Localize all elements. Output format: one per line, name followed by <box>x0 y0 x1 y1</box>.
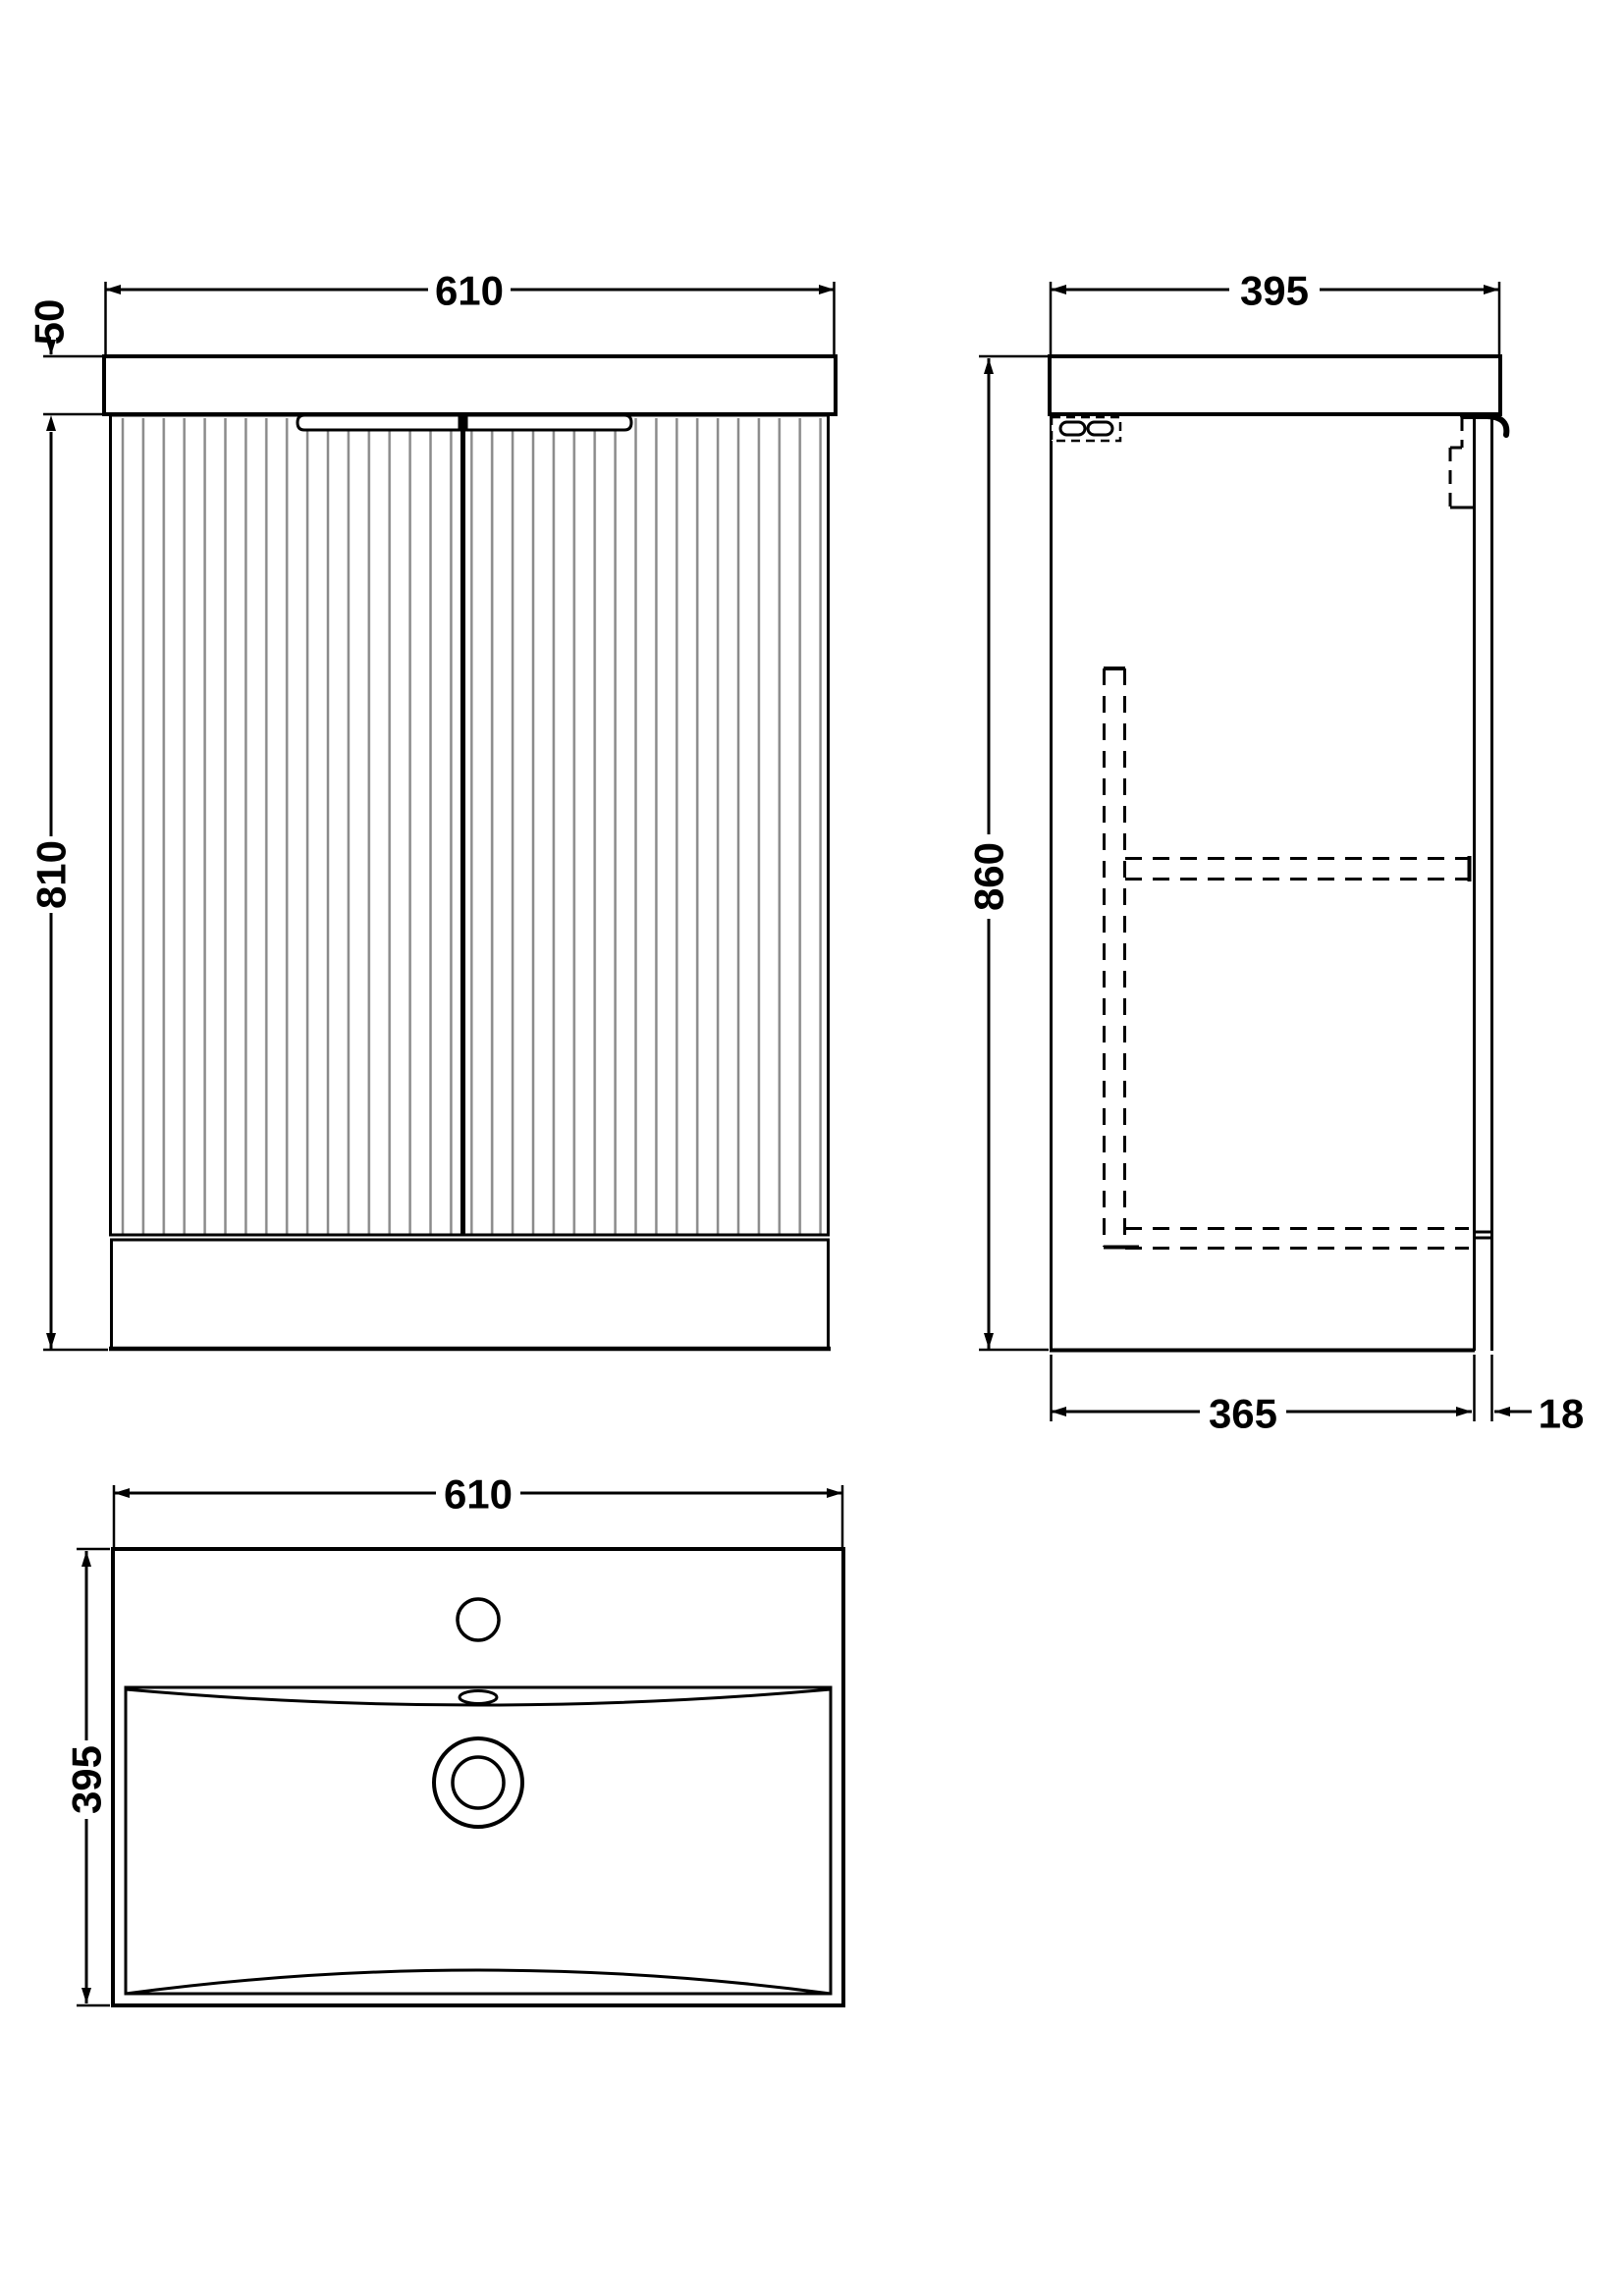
countertop-front <box>104 356 836 414</box>
dimension-label-cabinet-depth: 365 <box>1209 1391 1277 1437</box>
arrowhead <box>105 285 121 294</box>
waste-drain-inner <box>453 1757 504 1808</box>
dimension-label-overall-height: 860 <box>966 842 1012 911</box>
vanity-unit-technical-drawing: 610 50 810 <box>0 0 1623 2296</box>
arrowhead <box>1051 285 1066 294</box>
wall-bracket-slot <box>1060 422 1085 435</box>
handle-recess-right <box>466 415 631 430</box>
basin-lip <box>1463 416 1506 435</box>
arrowhead <box>81 1988 91 2003</box>
arrowhead <box>984 358 994 374</box>
arrowhead <box>1484 285 1499 294</box>
handle-recess-left <box>298 415 460 430</box>
arrowhead <box>46 415 56 431</box>
dimension-label-basin-width: 610 <box>444 1471 513 1518</box>
side-section-view <box>1050 356 1506 1351</box>
arrowhead <box>819 285 835 294</box>
arrowhead <box>1051 1407 1066 1416</box>
technical-drawing-page: 610 50 810 <box>0 0 1623 2296</box>
dimension-label-door-thickness: 18 <box>1539 1391 1585 1437</box>
arrowhead <box>1494 1407 1510 1416</box>
arrowhead <box>827 1488 842 1498</box>
arrowhead <box>1456 1407 1472 1416</box>
dimension-label-cabinet-height: 810 <box>28 840 75 909</box>
dimension-label-side-depth: 395 <box>1240 268 1309 314</box>
dimension-label-basin-depth: 395 <box>64 1745 110 1814</box>
arrowhead <box>114 1488 130 1498</box>
arrowhead <box>984 1333 994 1349</box>
fluted-door-texture <box>113 418 826 1235</box>
basin-plan-view <box>113 1549 843 2005</box>
overflow-slot <box>460 1691 497 1704</box>
arrowhead <box>81 1551 91 1567</box>
tap-hole <box>458 1599 499 1640</box>
side-countertop <box>1050 356 1500 414</box>
front-elevation-view <box>104 356 836 1349</box>
dimension-label-worktop-height: 50 <box>27 299 73 346</box>
dimension-label-front-width: 610 <box>435 268 504 314</box>
arrowhead <box>46 1333 56 1349</box>
wall-bracket-slot <box>1088 422 1112 435</box>
